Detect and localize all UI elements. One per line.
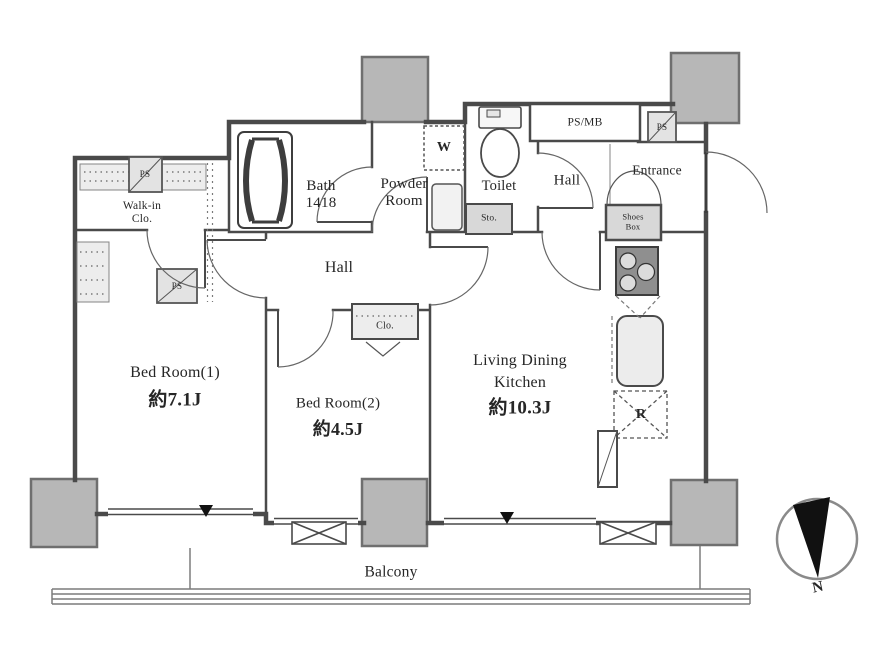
shoes-box-label-line2: Box: [622, 222, 643, 232]
closet-bifold-door: [366, 342, 400, 356]
column-top-center: [362, 57, 428, 122]
ps-walkin-bottom-label: PS: [172, 281, 182, 291]
powder-room-label-line2: Room: [380, 193, 427, 210]
ldk-area-label: 約10.3J: [489, 397, 552, 418]
closet-label: Clo.: [376, 320, 394, 331]
walk-in-closet-label-line1: Walk-in: [123, 200, 161, 213]
compass: [777, 497, 857, 579]
bedroom2-area-label: 約4.5J: [313, 419, 364, 439]
door-bedroom1: [207, 240, 266, 298]
ps-walkin-top-label: PS: [140, 169, 150, 179]
door-hall-to-ldk: [430, 247, 488, 305]
entrance-label: Entrance: [632, 162, 682, 177]
bedroom1-name-label: Bed Room(1): [130, 364, 220, 382]
door-entrance-hall-to-ldk: [542, 232, 600, 290]
bedroom1-area-label: 約7.1J: [148, 389, 201, 410]
balcony-label: Balcony: [364, 563, 417, 580]
walk-in-closet-label-line2: Clo.: [123, 213, 161, 226]
floor-plan-drawing: [0, 0, 880, 670]
walk-in-closet-label: Walk-inClo.: [123, 200, 161, 226]
kitchen-stove: [616, 247, 658, 295]
bedroom2-name-label: Bed Room(2): [296, 396, 380, 413]
powder-room-label: PowderRoom: [380, 176, 427, 210]
ps-entrance-label: PS: [657, 122, 667, 132]
toilet-label: Toilet: [482, 178, 517, 194]
ac-sleeve-ldk: [600, 522, 656, 544]
door-main-entrance: [706, 152, 767, 213]
column-top-right: [671, 53, 739, 123]
hall-middle-label: Hall: [325, 259, 353, 277]
bath-label-line1: Bath: [306, 178, 337, 195]
column-bottom-left: [31, 479, 97, 547]
ps-mb-label: PS/MB: [568, 117, 603, 130]
storage-label: Sto.: [481, 214, 497, 225]
powder-room-label-line1: Powder: [380, 176, 427, 193]
washbasin: [432, 184, 462, 230]
door-bedroom2: [278, 310, 333, 367]
kitchen-counter: [612, 296, 663, 386]
kitchen-end-panel: [598, 431, 617, 487]
shoes-box-label: ShoesBox: [622, 212, 643, 231]
floor-plan: Walk-inClo. PS PS Bath1418 PowderRoom W …: [0, 0, 880, 670]
refrigerator-label: R: [636, 407, 646, 423]
bath-label: Bath1418: [306, 178, 337, 212]
bathtub: [238, 132, 292, 228]
toilet-fixture: [479, 107, 521, 177]
ldk-name-label-line1: Living Dining: [473, 352, 567, 370]
washer-label: W: [437, 140, 451, 156]
bath-label-line2: 1418: [306, 195, 337, 212]
column-bottom-center: [362, 479, 427, 546]
ldk-name-label-line2: Kitchen: [494, 374, 546, 392]
column-bottom-right: [671, 480, 737, 545]
hall-upper-label: Hall: [554, 173, 581, 190]
ac-sleeve-bedroom2: [292, 522, 346, 544]
